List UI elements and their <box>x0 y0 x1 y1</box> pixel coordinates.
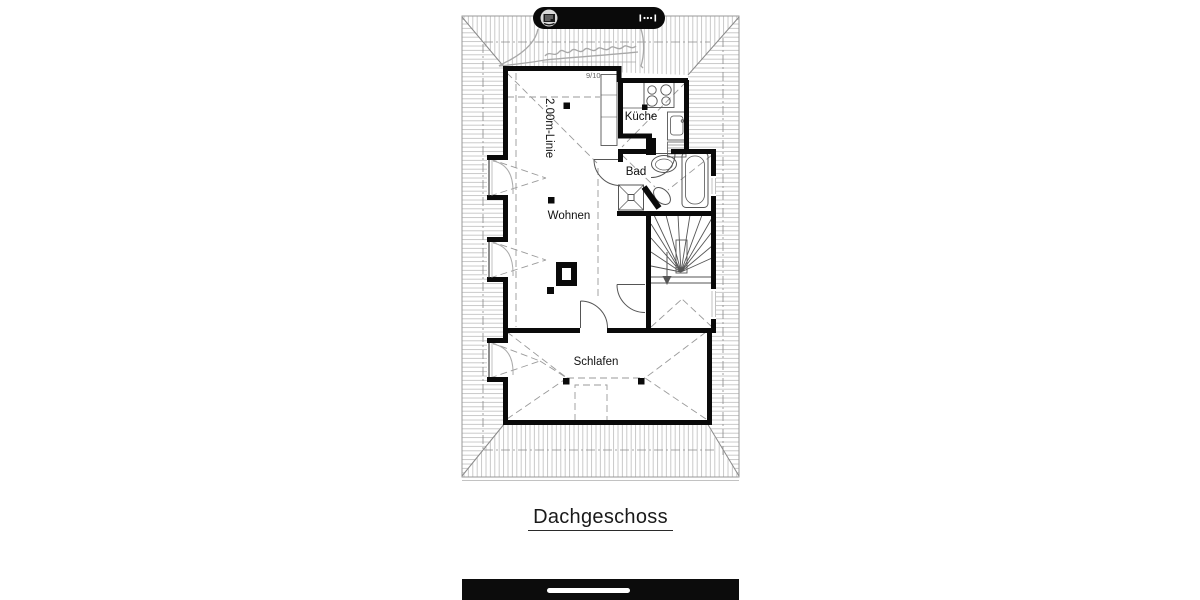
room-label-schlafen: Schlafen <box>574 356 619 368</box>
wall-note-label: 9/10 <box>586 71 601 80</box>
room-label-kueche: Küche <box>625 111 658 123</box>
toolbar-pill[interactable] <box>533 7 665 29</box>
floorplan-page: Küche Bad Wohnen Schlafen 2.00m-Linie 9/… <box>0 0 1200 600</box>
height-line-label: 2.00m-Linie <box>543 98 555 158</box>
wall-pier <box>646 138 656 155</box>
measure-marks-icon <box>640 15 657 22</box>
plan-caption: Dachgeschoss <box>462 506 739 529</box>
chimney-icon <box>556 262 577 286</box>
room-label-bad: Bad <box>626 166 646 178</box>
bottom-bar <box>462 579 739 600</box>
toolbar-pill-icons <box>533 7 665 29</box>
plan-title: Dachgeschoss <box>528 506 673 531</box>
drag-handle[interactable] <box>547 588 630 593</box>
room-label-wohnen: Wohnen <box>548 210 591 222</box>
stamp-logo-icon <box>541 10 558 27</box>
